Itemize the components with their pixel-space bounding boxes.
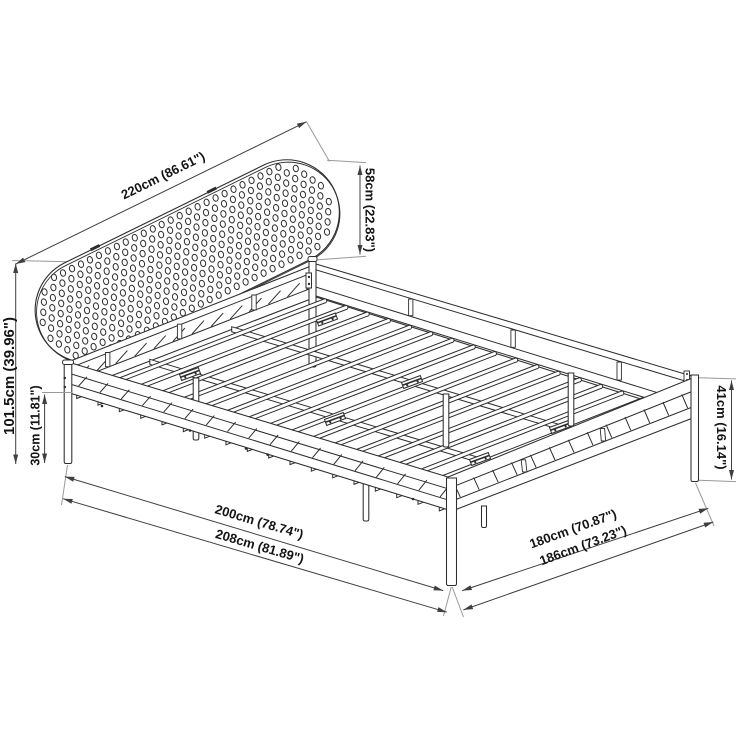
- svg-text:30cm (11.81"): 30cm (11.81"): [29, 385, 43, 465]
- svg-text:41cm (16.14"): 41cm (16.14"): [714, 385, 729, 469]
- svg-text:101.5cm (39.96"): 101.5cm (39.96"): [1, 317, 18, 435]
- svg-text:58cm (22.83"): 58cm (22.83"): [363, 168, 378, 252]
